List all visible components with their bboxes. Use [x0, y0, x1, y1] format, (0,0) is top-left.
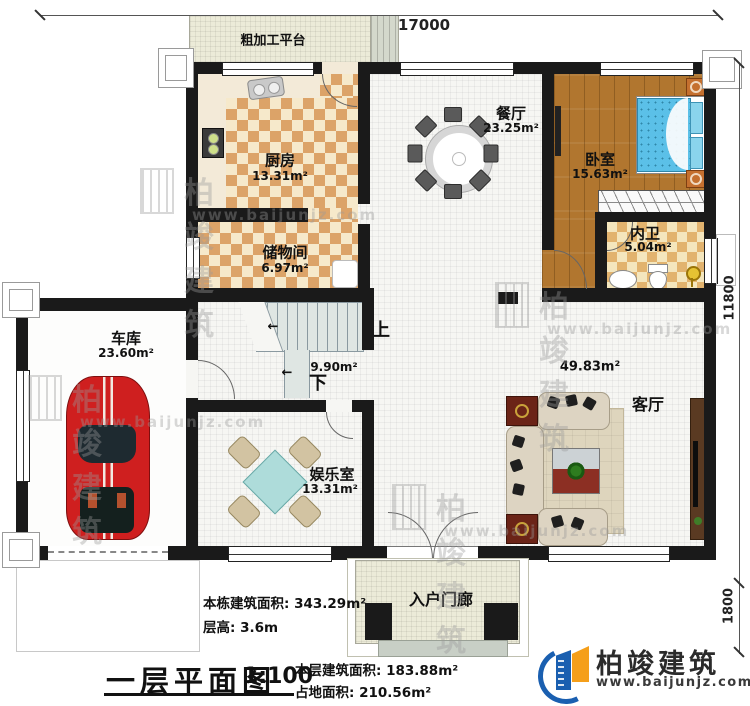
- sofa-left: [506, 426, 544, 520]
- wall-ent-right: [362, 400, 374, 546]
- wall-kitchen-right: [358, 62, 370, 204]
- porch-label: 入户门廊: [409, 586, 473, 610]
- wall-bottom: [668, 546, 716, 560]
- wall-ent-top-left: [198, 400, 326, 412]
- wall-kitchen-storage: [198, 208, 308, 222]
- stairs-up-label: 上: [372, 316, 390, 342]
- wall-bottom: [198, 546, 228, 560]
- door-gap-platform: [322, 62, 358, 74]
- kitchen-area: 13.31m²: [252, 169, 308, 183]
- entertainment-area: 13.31m²: [302, 482, 358, 496]
- wall-garage-top: [16, 298, 198, 311]
- dim-line-top: [40, 15, 718, 16]
- garage-area: 23.60m²: [98, 346, 154, 360]
- window-kitchen: [222, 62, 314, 76]
- bathroom-sink: [609, 270, 637, 289]
- porch-pillar-right: [484, 603, 518, 640]
- console-plant: [694, 517, 702, 525]
- dim-porch-label: 1800: [722, 588, 737, 624]
- window-living: [548, 546, 670, 562]
- car-windshield: [78, 425, 136, 463]
- dining-area: 23.25m²: [483, 121, 539, 135]
- stairs-up-arrow: ←: [268, 320, 279, 335]
- logo-building-blue-icon: [556, 650, 571, 690]
- dining-chair: [444, 107, 462, 122]
- wall-stairs-right: [362, 288, 374, 350]
- window-bedroom: [600, 62, 694, 76]
- end-table: [506, 396, 538, 426]
- wall-bath-left: [595, 212, 607, 288]
- platform-steps: [370, 15, 399, 67]
- garage-door-dashed: [48, 551, 168, 553]
- bed-pillow: [690, 102, 703, 134]
- kitchen-name: 厨房: [265, 150, 295, 171]
- dining-chair: [444, 184, 462, 199]
- logo-website: www.baijunjz.com: [596, 675, 750, 690]
- sofa-pillow: [512, 483, 525, 496]
- wall-hall-west-lower: [186, 398, 198, 546]
- window-storage: [186, 237, 200, 279]
- dim-right-label: 11800: [723, 275, 738, 320]
- door-gap-bedroom: [542, 250, 554, 288]
- dim-line-right: [739, 64, 740, 654]
- dining-chair: [484, 145, 499, 163]
- corner-trim: [2, 532, 40, 568]
- shower-stem: [691, 278, 693, 287]
- stat-floor-area: 本层建筑面积: 183.88m²: [295, 659, 458, 679]
- hall-pillar: [498, 292, 518, 304]
- bathroom-area: 5.04m²: [624, 240, 671, 254]
- tv: [693, 441, 698, 507]
- stat-floor-height: 层高: 3.6m: [203, 616, 278, 636]
- door-gap-entertainment: [326, 400, 352, 412]
- logo: 柏竣建筑 www.baijunjz.com: [538, 638, 743, 698]
- door-gap-garage: [186, 360, 198, 398]
- wall-hall-west-upper: [186, 302, 198, 360]
- wall-storage-bottom: [186, 288, 374, 302]
- porch-pillar-left: [365, 603, 392, 640]
- nightstand: [686, 170, 706, 188]
- wall-bedroom-left: [542, 62, 554, 250]
- watermark-logo-icon: [140, 168, 174, 214]
- bed-pillow: [690, 137, 703, 169]
- shower-head: [686, 266, 701, 281]
- dining-chair: [408, 145, 423, 163]
- corner-trim: [702, 50, 742, 89]
- stat-footprint: 占地面积: 210.56m²: [295, 681, 431, 701]
- car: [66, 376, 150, 540]
- wardrobe: [598, 190, 706, 214]
- driveway: [16, 560, 200, 652]
- window-entertainment: [228, 546, 332, 562]
- wall-bath-top: [595, 212, 716, 222]
- storage-name: 储物间: [262, 242, 307, 263]
- kitchen-storage-passage: [308, 208, 358, 222]
- title-underline: [104, 693, 294, 696]
- bedroom-area: 15.63m²: [572, 167, 628, 181]
- storage-appliance: [332, 260, 358, 288]
- dim-top-label: 17000: [398, 16, 450, 34]
- window-garage: [16, 370, 30, 482]
- floor-plan: 粗加工平台 ← ← 上 下 9.90m²: [0, 0, 750, 706]
- living-area: 49.83m²: [560, 360, 620, 375]
- platform-label: 粗加工平台: [240, 30, 305, 49]
- wall-right: [704, 62, 716, 560]
- stairs-down-arrow: ←: [282, 366, 293, 381]
- corner-trim: [2, 282, 40, 318]
- wall-bedroom-bottom: [542, 288, 716, 302]
- wall-garage-bottom-right: [168, 546, 198, 560]
- stairs-area: 9.90m²: [310, 360, 357, 374]
- porch-steps: [378, 640, 508, 657]
- storage-area: 6.97m²: [261, 261, 308, 275]
- car-engine: [80, 487, 134, 533]
- corner-trim: [158, 48, 194, 88]
- bedroom-tv: [555, 106, 561, 156]
- coffee-table: [552, 448, 600, 494]
- sofa-pillow: [565, 394, 578, 407]
- kitchen-stove: [202, 128, 224, 158]
- window-dining: [400, 62, 514, 76]
- stat-building-total: 本栋建筑面积: 343.29m²: [203, 592, 366, 612]
- living-name: 客厅: [632, 391, 664, 415]
- end-table: [506, 514, 538, 544]
